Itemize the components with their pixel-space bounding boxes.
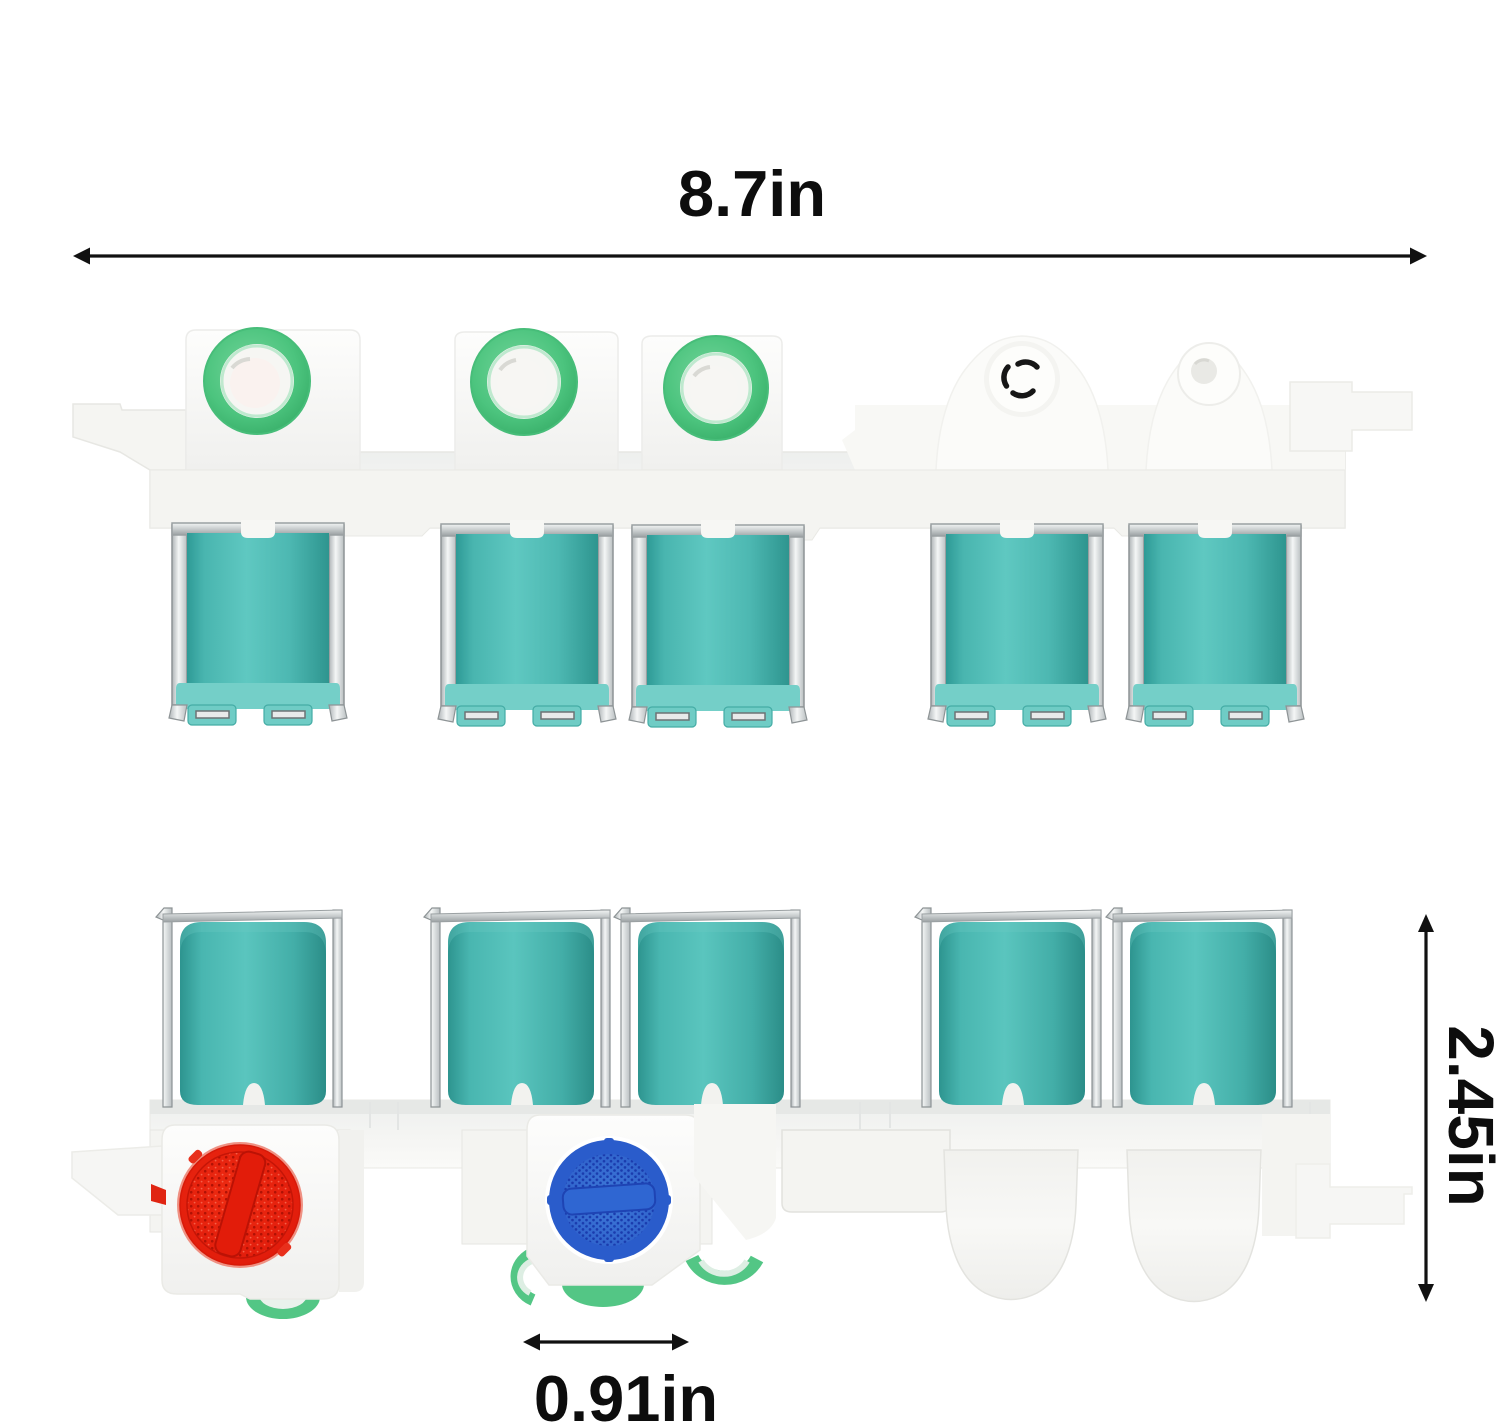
svg-text:2.45in: 2.45in bbox=[1435, 1025, 1500, 1206]
svg-text:8.7in: 8.7in bbox=[678, 157, 826, 230]
svg-text:0.91in: 0.91in bbox=[534, 1362, 718, 1423]
